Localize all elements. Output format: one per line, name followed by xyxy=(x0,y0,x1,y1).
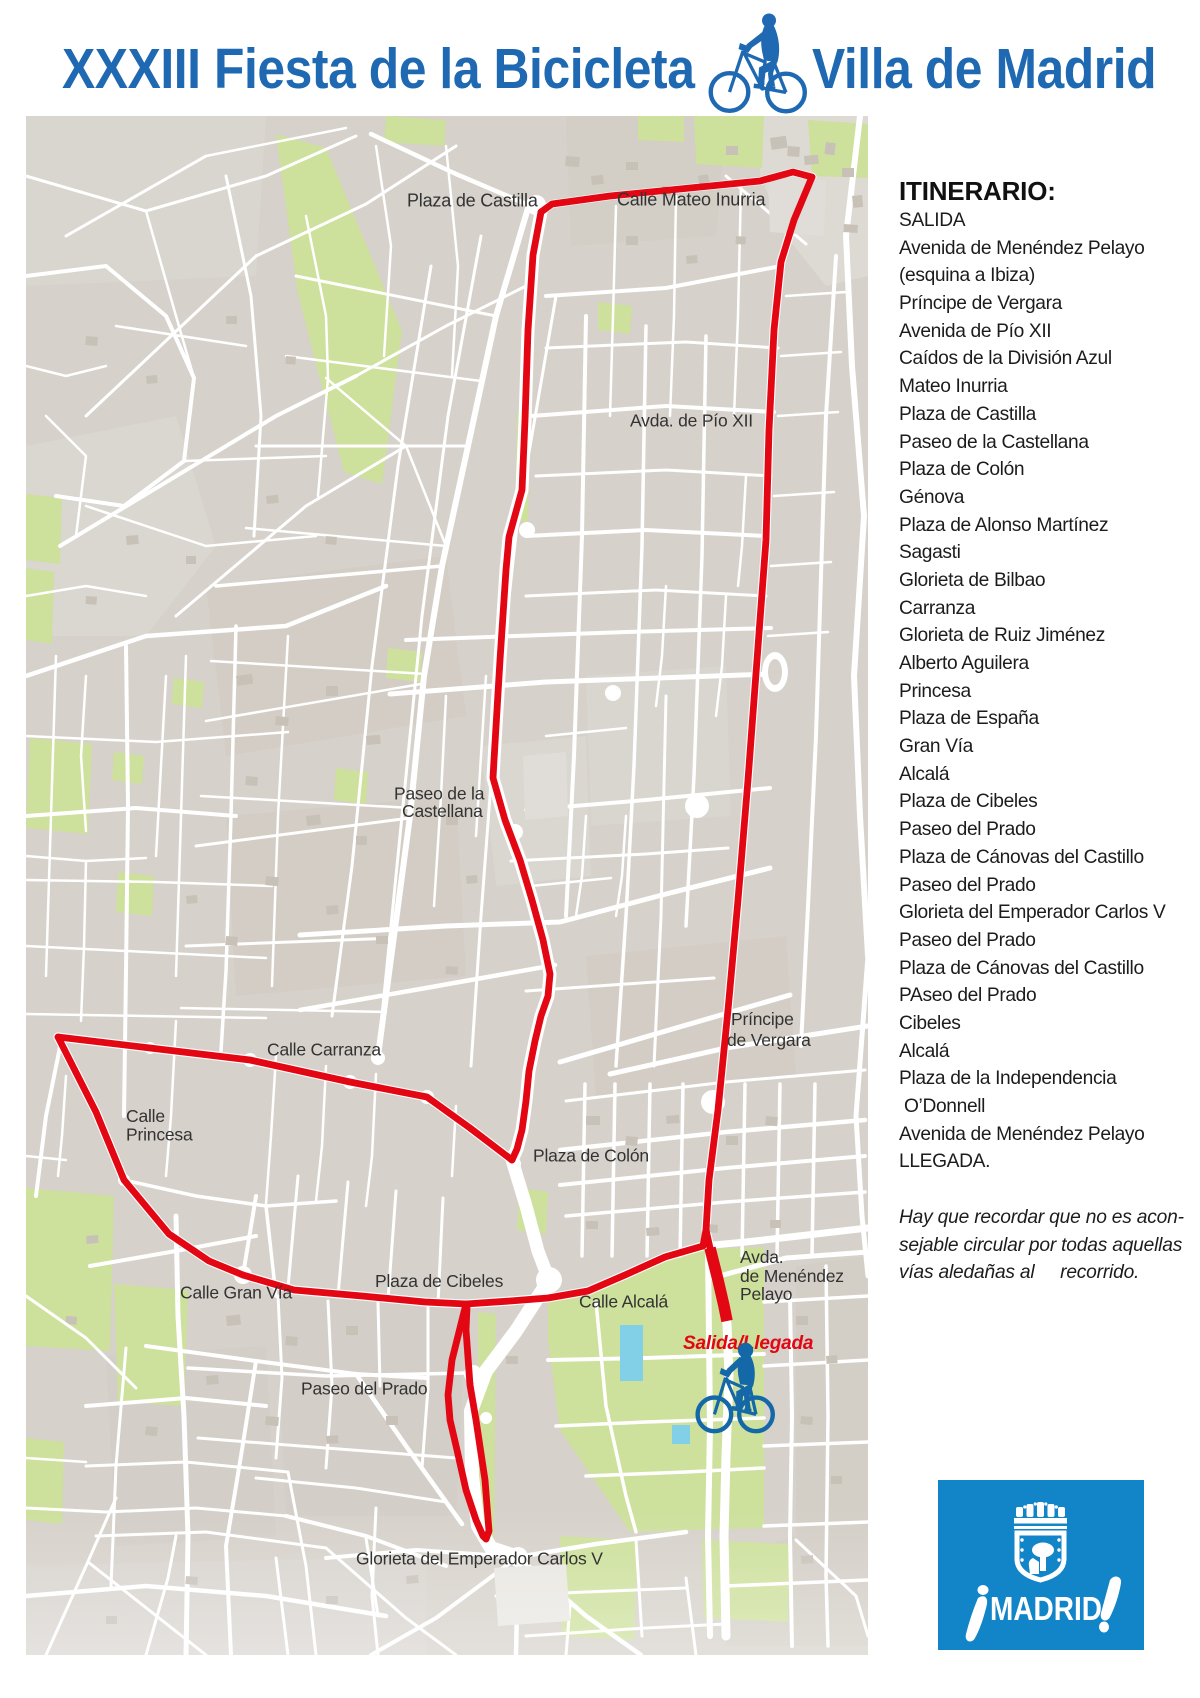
svg-text:Plaza de Colón: Plaza de Colón xyxy=(533,1146,649,1166)
svg-text:Plaza de Cibeles: Plaza de Cibeles xyxy=(375,1271,504,1291)
svg-text:Paseo del Prado: Paseo del Prado xyxy=(301,1379,427,1399)
svg-text:Calle Alcalá: Calle Alcalá xyxy=(579,1292,669,1312)
svg-text:Calle: Calle xyxy=(126,1106,165,1126)
svg-text:Castellana: Castellana xyxy=(402,801,483,821)
svg-text:Plaza de Castilla: Plaza de Castilla xyxy=(407,191,539,211)
svg-text:Glorieta del Emperador Carlos: Glorieta del Emperador Carlos V xyxy=(356,1549,603,1569)
svg-text:Avda. de Pío XII: Avda. de Pío XII xyxy=(630,411,753,431)
svg-text:Calle Carranza: Calle Carranza xyxy=(267,1040,381,1060)
svg-text:Calle Mateo Inurria: Calle Mateo Inurria xyxy=(617,190,766,210)
svg-text:Princesa: Princesa xyxy=(126,1125,193,1145)
svg-text:de Menéndez: de Menéndez xyxy=(740,1266,844,1286)
svg-text:Príncipe: Príncipe xyxy=(731,1009,794,1029)
svg-text:Calle Gran Vía: Calle Gran Vía xyxy=(180,1283,292,1303)
svg-text:de Vergara: de Vergara xyxy=(727,1030,811,1050)
svg-text:MADRID: MADRID xyxy=(990,1590,1102,1627)
svg-text:Pelayo: Pelayo xyxy=(740,1284,792,1304)
svg-text:Avda.: Avda. xyxy=(740,1247,783,1267)
